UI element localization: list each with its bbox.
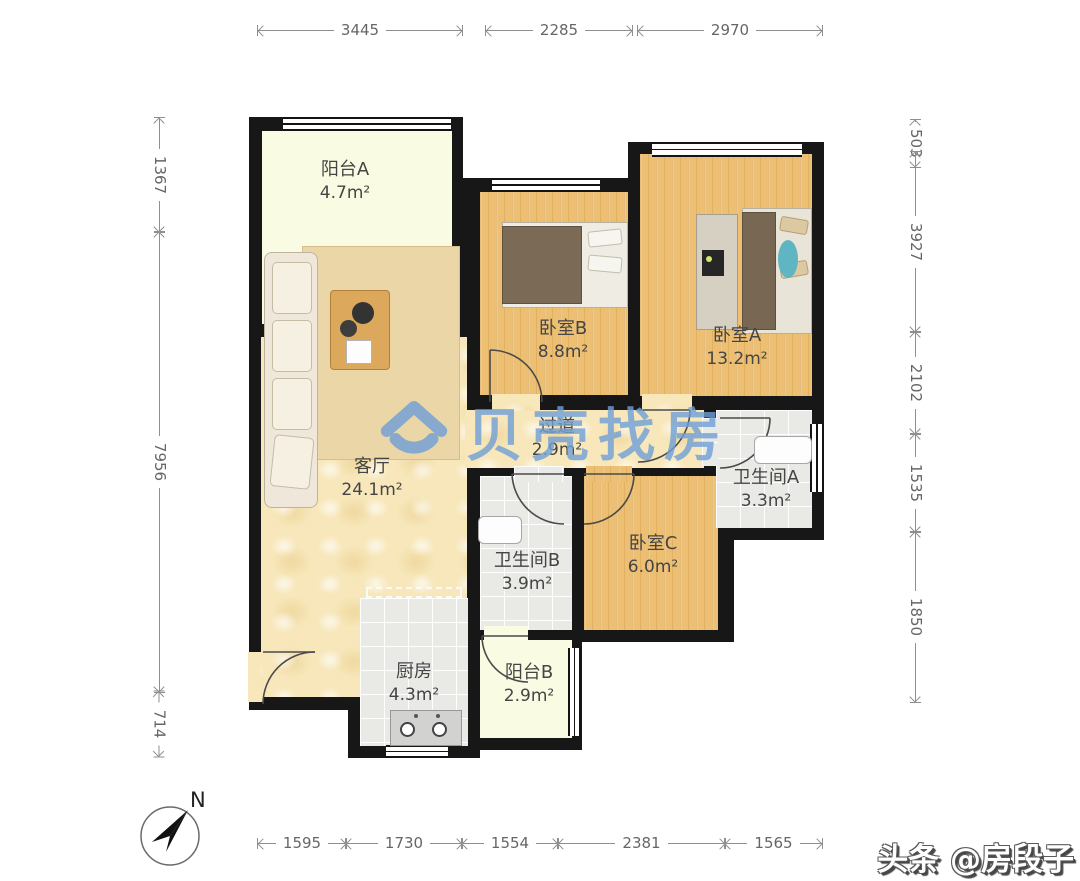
dim-value: 2970 [704, 20, 756, 40]
room-area: 8.8m² [538, 341, 588, 363]
room-name: 过道 [532, 415, 582, 439]
dim-line [536, 843, 558, 844]
window-balcony-b-right [568, 648, 581, 736]
dim-value: 714 [150, 703, 170, 746]
stove-knob [436, 714, 440, 718]
label-bath-b: 卫生间B 3.9m² [494, 549, 560, 595]
room-area: 3.9m² [494, 573, 560, 595]
dim-top-1: 3445 [258, 20, 462, 40]
north-arrow-icon [130, 786, 220, 876]
dim-line [916, 120, 917, 122]
dim-line [585, 30, 632, 31]
dim-value: 3927 [906, 216, 926, 268]
dim-line [916, 332, 917, 357]
dim-line [668, 843, 725, 844]
room-name: 客厅 [341, 455, 402, 479]
dim-value: 2285 [533, 20, 585, 40]
room-area: 4.3m² [389, 684, 439, 706]
dim-bottom-1: 1595 [258, 833, 346, 853]
dim-line [916, 152, 917, 216]
dim-line [916, 643, 917, 702]
dim-line [328, 843, 346, 844]
tv-a [702, 250, 724, 276]
label-bedroom-b: 卧室B 8.8m² [538, 317, 588, 363]
dim-value: 1554 [484, 833, 536, 853]
dim-line [386, 30, 462, 31]
label-hallway: 过道 2.9m² [532, 415, 582, 461]
room-area: 2.9m² [532, 439, 582, 461]
door-entrance [261, 650, 317, 706]
door-bedroom-b [488, 348, 544, 404]
dim-value: 2102 [906, 357, 926, 409]
room-area: 24.1m² [341, 479, 402, 501]
room-name: 阳台B [504, 661, 554, 685]
dim-line [725, 843, 747, 844]
sofa-cushion [272, 262, 312, 314]
dim-value: 1730 [378, 833, 430, 853]
dim-bottom-4: 2381 [558, 833, 725, 853]
label-kitchen: 厨房 4.3m² [389, 660, 439, 706]
dim-value: 2381 [615, 833, 667, 853]
dim-line [486, 30, 533, 31]
washbasin-bath-b [478, 516, 522, 544]
dim-top-3: 2970 [638, 20, 822, 40]
room-area: 6.0m² [628, 556, 678, 578]
dim-line [160, 118, 161, 149]
dim-line [258, 30, 334, 31]
bed-a-throw [778, 240, 798, 278]
bed-b-pillow [587, 255, 622, 274]
compass: N [130, 786, 220, 876]
dim-value: 1535 [906, 457, 926, 509]
dim-value: 1850 [906, 591, 926, 643]
dim-right-5: 1850 [906, 532, 926, 702]
dim-value: 7956 [150, 436, 170, 488]
dim-top-2: 2285 [486, 20, 632, 40]
dim-line [916, 409, 917, 434]
label-bedroom-a: 卧室A 13.2m² [706, 324, 767, 370]
credit-watermark: 头条 @房段子 [877, 834, 1074, 879]
dim-line [638, 30, 704, 31]
window-bath-a-right [810, 424, 824, 492]
compass-label: N [190, 788, 206, 812]
dim-line [462, 843, 484, 844]
bed-b-blanket [502, 226, 582, 304]
kitchen-dashed-opening [366, 587, 462, 598]
dim-line [916, 434, 917, 457]
dim-line [916, 268, 917, 332]
room-name: 厨房 [389, 660, 439, 684]
stove-burner [432, 722, 447, 737]
dim-line [159, 745, 160, 756]
label-balcony-b: 阳台B 2.9m² [504, 661, 554, 707]
teapot [352, 302, 374, 324]
room-name: 卫生间A [733, 466, 799, 490]
room-name: 卧室B [538, 317, 588, 341]
dim-line [159, 692, 160, 703]
dim-line [916, 532, 917, 591]
table-tray [346, 340, 372, 364]
dim-value: 1367 [150, 149, 170, 201]
room-name: 卧室C [628, 532, 678, 556]
bed-a-blanket [742, 212, 776, 330]
dim-bottom-2: 1730 [346, 833, 462, 853]
dim-line [346, 843, 378, 844]
room-name: 卫生间B [494, 549, 560, 573]
dim-line [756, 30, 822, 31]
stove-burner [400, 722, 415, 737]
door-gap-bath-a [702, 418, 718, 466]
dim-line [800, 843, 822, 844]
window-bedroom-b-top [492, 178, 600, 192]
dim-line [558, 843, 615, 844]
stove-knob [414, 714, 418, 718]
dim-value: 3445 [334, 20, 386, 40]
dim-right-4: 1535 [906, 434, 926, 532]
room-area: 2.9m² [504, 685, 554, 707]
bathtub-bath-a [754, 436, 812, 464]
dim-line [160, 201, 161, 232]
sofa-cushion [272, 378, 312, 430]
label-living: 客厅 24.1m² [341, 455, 402, 501]
dim-line [258, 843, 276, 844]
label-balcony-a: 阳台A 4.7m² [320, 158, 370, 204]
floor-plan-canvas: 阳台A 4.7m² 客厅 24.1m² 卧室B 8.8m² 卧室A 13.2m²… [0, 0, 1080, 881]
dim-line [160, 488, 161, 692]
tv-indicator [706, 256, 712, 262]
dim-right-2: 3927 [906, 152, 926, 332]
window-bedroom-a-top [652, 142, 802, 157]
dim-bottom-5: 1565 [725, 833, 822, 853]
dim-value: 1595 [276, 833, 328, 853]
dim-bottom-3: 1554 [462, 833, 558, 853]
door-bedroom-a [636, 408, 692, 464]
dim-left-2: 7956 [150, 232, 170, 692]
dim-value: 1565 [747, 833, 799, 853]
dim-left-1: 1367 [150, 118, 170, 232]
window-balcony-a-top [283, 117, 451, 131]
sofa-cushion [269, 434, 314, 490]
dim-line [916, 509, 917, 532]
sofa-cushion [272, 320, 312, 372]
label-bath-a: 卫生间A 3.3m² [733, 466, 799, 512]
room-area: 3.3m² [733, 490, 799, 512]
dim-line [430, 843, 462, 844]
room-area: 13.2m² [706, 348, 767, 370]
dim-left-3: 714 [150, 692, 170, 757]
room-name: 卧室A [706, 324, 767, 348]
window-kitchen-bottom [386, 745, 448, 758]
dim-right-3: 2102 [906, 332, 926, 434]
teapot-small [340, 320, 357, 337]
door-bedroom-c [582, 472, 636, 526]
room-name: 阳台A [320, 158, 370, 182]
dim-line [160, 232, 161, 436]
room-area: 4.7m² [320, 182, 370, 204]
label-bedroom-c: 卧室C 6.0m² [628, 532, 678, 578]
